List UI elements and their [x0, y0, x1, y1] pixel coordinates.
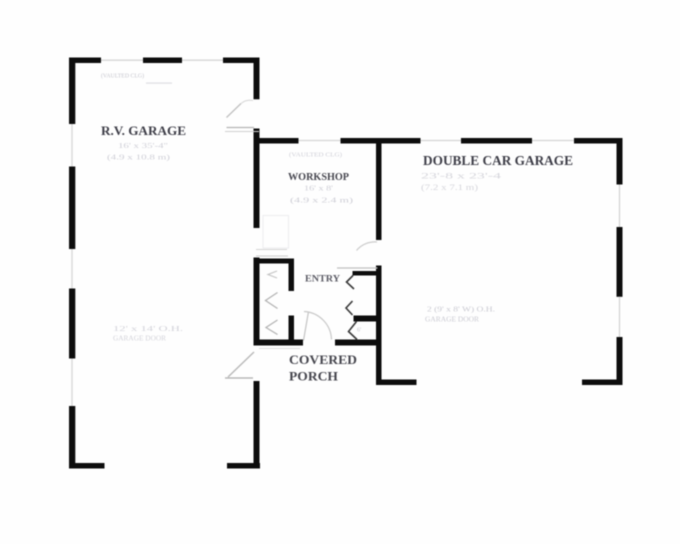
svg-text:R.V. GARAGE: R.V. GARAGE — [101, 123, 186, 138]
svg-text:23'-8 x 23'-4: 23'-8 x 23'-4 — [421, 172, 501, 181]
svg-text:(VAULTED CLG): (VAULTED CLG) — [101, 73, 144, 80]
svg-text:6': 6' — [357, 328, 361, 334]
svg-text:16' x 35'-4": 16' x 35'-4" — [118, 141, 168, 150]
svg-text:2 (9' x 8' W) O.H.: 2 (9' x 8' W) O.H. — [427, 307, 495, 314]
svg-text:(4.9 x 2.4 m): (4.9 x 2.4 m) — [290, 196, 354, 205]
svg-text:16' x 8': 16' x 8' — [304, 184, 334, 193]
svg-text:PORCH: PORCH — [289, 369, 338, 384]
svg-text:DOUBLE CAR GARAGE: DOUBLE CAR GARAGE — [423, 153, 573, 168]
svg-text:COVERED: COVERED — [289, 352, 357, 367]
svg-text:ENTRY: ENTRY — [305, 275, 340, 285]
svg-text:WORKSHOP: WORKSHOP — [288, 171, 349, 183]
svg-text:(4.9 x 10.8 m): (4.9 x 10.8 m) — [107, 153, 171, 162]
svg-text:(VAULTED CLG): (VAULTED CLG) — [289, 152, 342, 159]
svg-text:(7.2 x 7.1 m): (7.2 x 7.1 m) — [421, 183, 478, 192]
svg-text:12' x 14' O.H.: 12' x 14' O.H. — [113, 326, 184, 333]
svg-text:GARAGE DOOR: GARAGE DOOR — [113, 336, 166, 343]
svg-text:GARAGE DOOR: GARAGE DOOR — [425, 317, 480, 324]
